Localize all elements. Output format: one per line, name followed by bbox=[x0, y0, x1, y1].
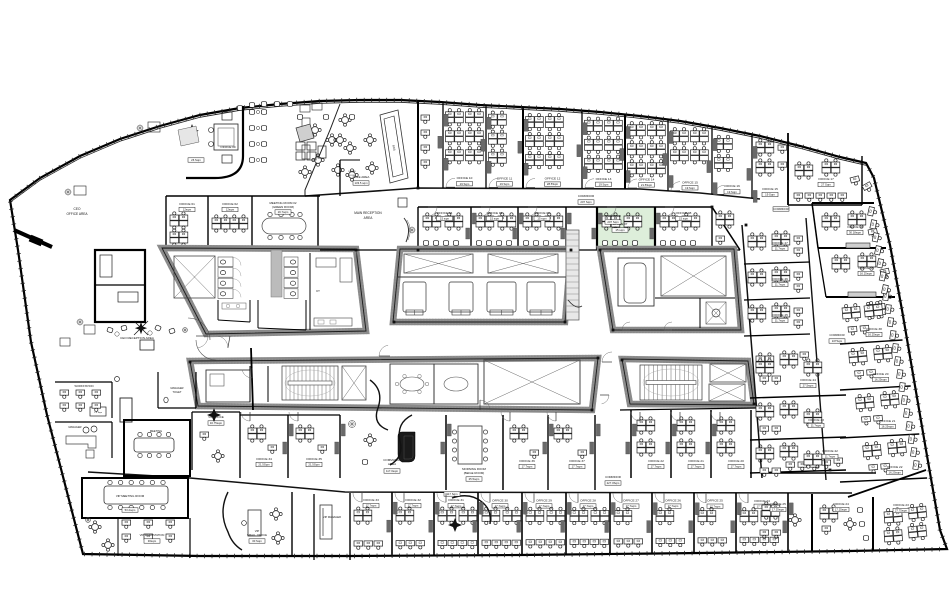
svg-text:OFFICE 37: OFFICE 37 bbox=[569, 459, 585, 463]
svg-text:19 Sqm: 19 Sqm bbox=[727, 190, 737, 194]
svg-text:CEO: CEO bbox=[74, 207, 81, 211]
svg-text:OFFICE 11: OFFICE 11 bbox=[497, 176, 513, 180]
svg-text:(BEIGE ROOM): (BEIGE ROOM) bbox=[464, 471, 485, 475]
svg-text:30 Sqm: 30 Sqm bbox=[252, 539, 262, 543]
svg-text:OFFICE 16: OFFICE 16 bbox=[724, 184, 740, 188]
svg-text:CORRIDOR: CORRIDOR bbox=[605, 475, 621, 479]
svg-text:OFFICE 33: OFFICE 33 bbox=[363, 498, 379, 502]
svg-text:OFFICE 25: OFFICE 25 bbox=[770, 502, 786, 506]
svg-text:OFFICE 30: OFFICE 30 bbox=[492, 498, 508, 502]
svg-text:KT: KT bbox=[316, 289, 320, 293]
svg-text:16.25sqm: 16.25sqm bbox=[874, 378, 887, 382]
svg-text:CORRIDOR: CORRIDOR bbox=[829, 333, 844, 337]
svg-text:OFFICE 45: OFFICE 45 bbox=[772, 313, 788, 317]
svg-text:OFFICE 14: OFFICE 14 bbox=[639, 177, 655, 181]
svg-text:OFFICE 35: OFFICE 35 bbox=[306, 457, 322, 461]
svg-text:19 Sqm: 19 Sqm bbox=[500, 182, 510, 186]
svg-text:27.5sqm: 27.5sqm bbox=[803, 384, 814, 388]
svg-text:17.7sqm: 17.7sqm bbox=[731, 465, 742, 469]
svg-text:12sqm: 12sqm bbox=[183, 208, 192, 212]
svg-text:19.7sqm: 19.7sqm bbox=[278, 210, 289, 214]
svg-text:15 sqm: 15 sqm bbox=[615, 228, 625, 232]
svg-text:OFFICE 24: OFFICE 24 bbox=[833, 502, 849, 506]
svg-text:VIP WORKSTATION: VIP WORKSTATION bbox=[140, 533, 165, 537]
svg-text:11.7sqm: 11.7sqm bbox=[811, 424, 822, 428]
svg-text:25.5sqm: 25.5sqm bbox=[469, 477, 480, 481]
svg-text:OFFICE 36: OFFICE 36 bbox=[519, 459, 535, 463]
svg-text:11.7sqm: 11.7sqm bbox=[775, 283, 786, 287]
svg-text:MANAGER: MANAGER bbox=[170, 386, 183, 390]
svg-text:11.7sqm: 11.7sqm bbox=[775, 247, 786, 251]
svg-text:OFFICE 42: OFFICE 42 bbox=[822, 449, 838, 453]
svg-text:VIP MEETING ROOM: VIP MEETING ROOM bbox=[116, 494, 145, 498]
svg-text:117.0sqm: 117.0sqm bbox=[386, 469, 399, 473]
svg-text:53.2sqm: 53.2sqm bbox=[125, 508, 136, 512]
svg-text:OFFICE 15: OFFICE 15 bbox=[762, 187, 778, 191]
svg-text:OFFICE 22: OFFICE 22 bbox=[648, 459, 664, 463]
svg-text:11.7sqm: 11.7sqm bbox=[775, 319, 786, 323]
svg-text:27.75sqm: 27.75sqm bbox=[895, 509, 908, 513]
svg-text:MANAGER: MANAGER bbox=[68, 425, 81, 429]
svg-text:TOILET: TOILET bbox=[172, 390, 181, 394]
svg-text:OFFICE 12: OFFICE 12 bbox=[545, 177, 561, 181]
svg-text:16.25sqm: 16.25sqm bbox=[889, 471, 902, 475]
svg-text:OFFICE 47: OFFICE 47 bbox=[772, 241, 788, 245]
svg-text:OFFICE 09: OFFICE 09 bbox=[220, 145, 236, 149]
svg-text:19 Sqm: 19 Sqm bbox=[599, 182, 609, 186]
svg-text:19 Sqm: 19 Sqm bbox=[765, 193, 775, 197]
svg-text:107Sqm: 107Sqm bbox=[832, 339, 843, 343]
svg-text:OFFICE 25: OFFICE 25 bbox=[707, 499, 723, 503]
svg-text:11.7sqm: 11.7sqm bbox=[825, 455, 836, 459]
svg-text:OFFICE 19: OFFICE 19 bbox=[858, 266, 874, 270]
svg-text:1 R Sqm: 1 R Sqm bbox=[94, 412, 102, 414]
svg-text:17.25sqm: 17.25sqm bbox=[772, 508, 785, 512]
svg-text:AREA: AREA bbox=[364, 216, 374, 220]
svg-text:OFFICE 06: OFFICE 06 bbox=[534, 211, 550, 215]
svg-text:30.18sqm: 30.18sqm bbox=[849, 231, 862, 235]
svg-text:OFFICE 26: OFFICE 26 bbox=[665, 499, 681, 503]
svg-text:30sqm: 30sqm bbox=[148, 539, 157, 543]
svg-text:OFFICE 21: OFFICE 21 bbox=[688, 459, 704, 463]
svg-text:16.75sqm: 16.75sqm bbox=[210, 421, 223, 425]
svg-text:OFFICE 38: OFFICE 38 bbox=[866, 327, 882, 331]
svg-text:OFFICE 21: OFFICE 21 bbox=[880, 419, 896, 423]
svg-text:OFFICE 22: OFFICE 22 bbox=[887, 465, 903, 469]
svg-text:21.5Sqm: 21.5Sqm bbox=[641, 183, 653, 187]
svg-text:19 Sqm: 19 Sqm bbox=[460, 182, 470, 186]
svg-text:OFFICE 10: OFFICE 10 bbox=[457, 176, 473, 180]
svg-text:OFFICE 17: OFFICE 17 bbox=[818, 177, 834, 181]
svg-text:26 Sqm: 26 Sqm bbox=[191, 158, 201, 162]
svg-text:OFFICE 44: OFFICE 44 bbox=[800, 378, 816, 382]
svg-text:OFFICE 28: OFFICE 28 bbox=[580, 498, 596, 502]
svg-text:17.25sqm: 17.25sqm bbox=[835, 508, 848, 512]
svg-text:16.25sqm: 16.25sqm bbox=[881, 425, 894, 429]
svg-text:OFFICE 32: OFFICE 32 bbox=[405, 498, 421, 502]
svg-text:OFFICE 04: OFFICE 04 bbox=[437, 211, 453, 215]
svg-text:207 Sqm: 207 Sqm bbox=[580, 200, 592, 204]
svg-text:OFFICE 08: OFFICE 08 bbox=[676, 211, 692, 215]
svg-text:VIP MANAGER: VIP MANAGER bbox=[323, 515, 341, 519]
svg-text:OFFICE 05: OFFICE 05 bbox=[487, 211, 503, 215]
svg-text:21.5Sqm: 21.5Sqm bbox=[258, 463, 270, 467]
svg-text:(GREEN ROOM): (GREEN ROOM) bbox=[272, 205, 294, 209]
svg-text:CORRIDOR: CORRIDOR bbox=[578, 194, 595, 198]
svg-text:OFFICE 34: OFFICE 34 bbox=[256, 457, 272, 461]
svg-text:207 Sqm: 207 Sqm bbox=[607, 220, 619, 224]
svg-text:15 sqm: 15 sqm bbox=[490, 217, 500, 221]
svg-text:12sqm: 12sqm bbox=[226, 208, 235, 212]
svg-text:117 Sqm: 117 Sqm bbox=[447, 492, 459, 496]
svg-text:OFFICE 29: OFFICE 29 bbox=[536, 498, 552, 502]
svg-text:28.5Sqm: 28.5Sqm bbox=[547, 182, 559, 186]
svg-text:17.7sqm: 17.7sqm bbox=[572, 465, 583, 469]
svg-text:OFFICE 31: OFFICE 31 bbox=[448, 498, 464, 502]
svg-text:WORKSTATION: WORKSTATION bbox=[75, 384, 94, 388]
svg-text:21.5Sqm: 21.5Sqm bbox=[308, 463, 320, 467]
svg-text:17.7sqm: 17.7sqm bbox=[522, 465, 533, 469]
svg-text:17.7sqm: 17.7sqm bbox=[651, 465, 662, 469]
svg-text:OFFICE 23: OFFICE 23 bbox=[893, 503, 909, 507]
svg-text:133.5 sqm: 133.5 sqm bbox=[354, 181, 368, 185]
svg-text:ROOM: ROOM bbox=[349, 175, 356, 177]
svg-text:17.7sqm: 17.7sqm bbox=[691, 465, 702, 469]
svg-text:16.25sqm: 16.25sqm bbox=[868, 333, 881, 337]
svg-text:SMALL OFFICE: SMALL OFFICE bbox=[247, 533, 267, 537]
svg-text:MEETING: MEETING bbox=[150, 429, 162, 433]
svg-text:27 Sqm: 27 Sqm bbox=[821, 183, 831, 187]
svg-text:227.0Sqm: 227.0Sqm bbox=[607, 481, 620, 485]
svg-text:OFFICE AREA: OFFICE AREA bbox=[66, 212, 88, 216]
svg-text:CORRIDOR: CORRIDOR bbox=[773, 207, 788, 211]
svg-text:OFFICE 27: OFFICE 27 bbox=[623, 499, 639, 503]
svg-text:OFFICE 13: OFFICE 13 bbox=[596, 177, 612, 181]
svg-text:OFFICE 20: OFFICE 20 bbox=[873, 372, 889, 376]
svg-text:15 sqm: 15 sqm bbox=[537, 217, 547, 221]
svg-text:OFFICE 43: OFFICE 43 bbox=[808, 418, 824, 422]
svg-text:STORE: STORE bbox=[348, 171, 356, 173]
svg-text:OFFICE 20: OFFICE 20 bbox=[728, 459, 744, 463]
svg-text:15 sqm: 15 sqm bbox=[679, 217, 689, 221]
svg-text:15 sqm: 15 sqm bbox=[440, 217, 450, 221]
svg-text:16.25sqm: 16.25sqm bbox=[860, 272, 873, 276]
svg-text:19 Sqm: 19 Sqm bbox=[685, 186, 695, 190]
svg-text:OFFICE 61: OFFICE 61 bbox=[179, 202, 195, 206]
svg-text:MAIN RECEPTION: MAIN RECEPTION bbox=[354, 211, 382, 215]
svg-text:OFFICE 15: OFFICE 15 bbox=[682, 180, 698, 184]
svg-text:OFFICE 18: OFFICE 18 bbox=[847, 225, 863, 229]
svg-text:OFFICE 62: OFFICE 62 bbox=[222, 202, 238, 206]
svg-text:OFFICE 46: OFFICE 46 bbox=[772, 277, 788, 281]
svg-text:CEO RECEPTION AREA: CEO RECEPTION AREA bbox=[120, 336, 154, 340]
